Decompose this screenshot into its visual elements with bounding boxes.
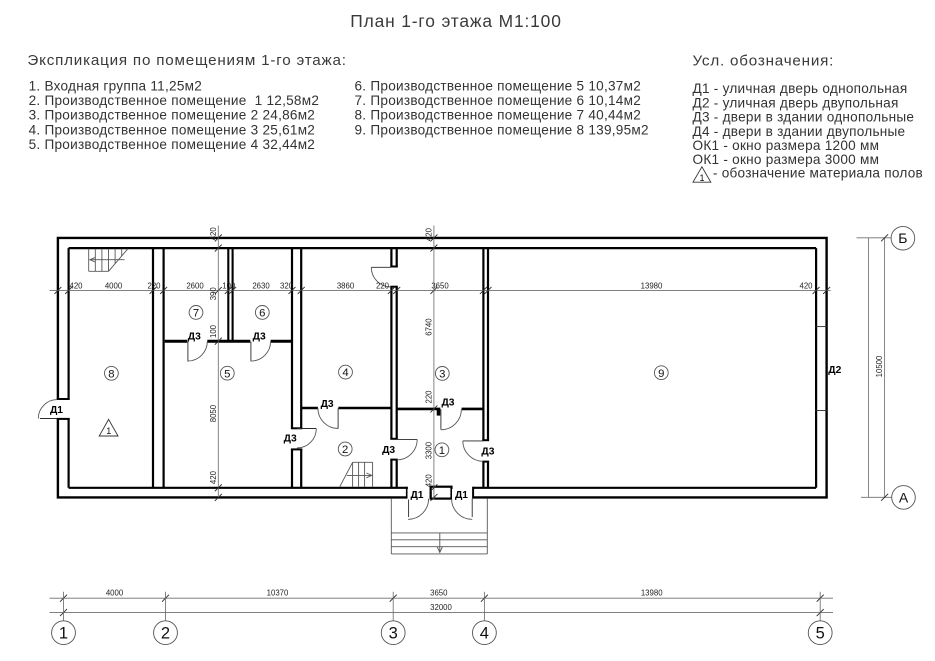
svg-text:2. Производственное помещение: 2. Производственное помещение 1 12,58м2 [29, 93, 320, 108]
svg-text:32000: 32000 [430, 603, 452, 612]
svg-text:Д3: Д3 [441, 397, 454, 408]
svg-text:Д4 - двери в здании двупольные: Д4 - двери в здании двупольные [693, 124, 906, 139]
svg-text:3. Производственное помещение: 3. Производственное помещение 2 24,86м2 [29, 108, 316, 123]
svg-text:6740: 6740 [425, 318, 434, 336]
svg-text:Усл. обозначения:: Усл. обозначения: [693, 52, 835, 69]
svg-text:420: 420 [799, 281, 813, 290]
svg-text:4: 4 [480, 625, 489, 643]
svg-text:5. Производственное помещение: 5. Производственное помещение 4 32,44м2 [29, 137, 316, 152]
svg-text:3: 3 [389, 625, 398, 643]
svg-text:6. Производственное помещение: 6. Производственное помещение 5 10,37м2 [355, 78, 642, 93]
svg-text:4000: 4000 [105, 281, 123, 290]
svg-text:Д1: Д1 [455, 490, 468, 501]
svg-text:390: 390 [209, 287, 218, 301]
svg-text:9: 9 [658, 368, 664, 380]
svg-text:Д3: Д3 [253, 332, 266, 343]
svg-text:220: 220 [425, 390, 434, 404]
svg-text:Д2 - уличная дверь двупольная: Д2 - уличная дверь двупольная [693, 95, 899, 110]
svg-text:4: 4 [342, 367, 348, 379]
svg-text:Д1: Д1 [50, 405, 63, 416]
svg-text:План 1-го этажа М1:100: План 1-го этажа М1:100 [350, 11, 561, 31]
svg-text:220: 220 [147, 281, 161, 290]
svg-text:2: 2 [342, 444, 348, 456]
svg-text:1: 1 [59, 625, 68, 643]
svg-text:7: 7 [193, 308, 199, 320]
svg-text:100: 100 [222, 281, 236, 290]
svg-text:6: 6 [259, 308, 265, 320]
svg-text:ОК1 - окно размера 1200 мм: ОК1 - окно размера 1200 мм [693, 138, 880, 153]
svg-text:1: 1 [106, 426, 111, 436]
svg-text:8: 8 [108, 368, 114, 380]
svg-text:Д3: Д3 [321, 399, 334, 410]
svg-text:220: 220 [376, 281, 390, 290]
svg-text:3650: 3650 [430, 588, 448, 597]
svg-text:420: 420 [209, 227, 218, 241]
svg-text:1. Входная группа 11,25м2: 1. Входная группа 11,25м2 [29, 78, 202, 93]
svg-text:8050: 8050 [209, 404, 218, 422]
svg-text:13980: 13980 [641, 281, 663, 290]
svg-text:10500: 10500 [875, 355, 884, 377]
svg-text:Д1: Д1 [410, 490, 423, 501]
svg-text:1: 1 [439, 445, 445, 457]
svg-text:Д3: Д3 [188, 331, 201, 342]
svg-text:3300: 3300 [425, 441, 434, 459]
svg-text:2600: 2600 [186, 281, 204, 290]
svg-text:100: 100 [209, 324, 218, 338]
svg-text:4. Производственное помещение: 4. Производственное помещение 3 25,61м2 [29, 122, 316, 137]
svg-text:420: 420 [69, 281, 83, 290]
svg-text:13980: 13980 [641, 588, 663, 597]
svg-text:9. Производственное помещение: 9. Производственное помещение 8 139,95м2 [355, 122, 649, 137]
svg-text:Д3: Д3 [481, 447, 494, 458]
svg-text:5: 5 [224, 368, 230, 380]
svg-text:420: 420 [425, 474, 434, 488]
svg-text:10370: 10370 [267, 588, 289, 597]
svg-text:3860: 3860 [337, 281, 355, 290]
svg-text:2630: 2630 [252, 281, 270, 290]
svg-text:Д1 - уличная дверь однопольная: Д1 - уличная дверь однопольная [693, 81, 908, 96]
svg-text:420: 420 [209, 470, 218, 484]
svg-text:Б: Б [898, 230, 907, 246]
svg-text:420: 420 [425, 227, 434, 241]
svg-text:Д2: Д2 [828, 365, 841, 376]
svg-text:- обозначение материала полов: - обозначение материала полов [713, 166, 923, 181]
svg-text:8. Производственное помещение: 8. Производственное помещение 7 40,44м2 [355, 108, 642, 123]
svg-text:Д3: Д3 [382, 445, 395, 456]
svg-text:3: 3 [439, 369, 445, 381]
svg-text:4000: 4000 [106, 588, 124, 597]
svg-text:7. Производственное помещение: 7. Производственное помещение 6 10,14м2 [355, 93, 642, 108]
svg-text:Д3 - двери в здании однопольны: Д3 - двери в здании однопольные [693, 110, 915, 125]
svg-text:Экспликация по помещениям 1-го: Экспликация по помещениям 1-го этажа: [27, 52, 346, 69]
svg-text:1: 1 [699, 173, 704, 183]
svg-text:5: 5 [816, 625, 825, 643]
svg-text:А: А [899, 489, 909, 505]
svg-text:320: 320 [280, 281, 294, 290]
svg-text:2: 2 [161, 625, 170, 643]
svg-text:Д3: Д3 [284, 433, 297, 444]
